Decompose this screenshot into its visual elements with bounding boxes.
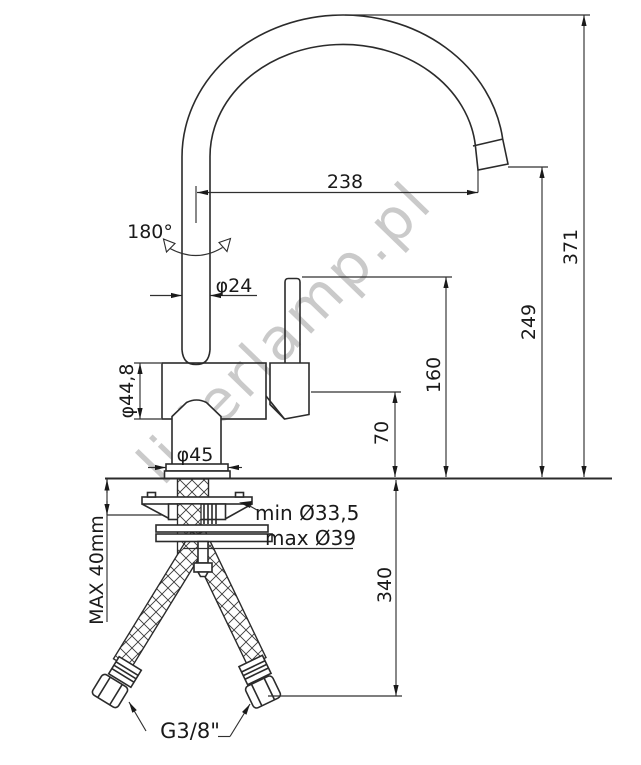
dim-340: 340 (374, 567, 396, 603)
dimension-spout-tube-dia: φ24 (150, 275, 257, 297)
dim-max40mm: MAX 40mm (86, 515, 108, 625)
dim-phi24: φ24 (216, 275, 253, 297)
extension-lines (134, 363, 161, 419)
threaded-shank (178, 479, 209, 498)
spout-outer-arc (182, 15, 503, 157)
dim-phi45: φ45 (177, 444, 214, 466)
washer-plate (142, 497, 252, 504)
label-g38: G3/8" (160, 719, 220, 743)
dim-249: 249 (518, 304, 540, 340)
label-hole-min: min Ø33,5 (255, 501, 359, 525)
dimension-body-dia: φ44,8 (116, 363, 161, 419)
dim-160: 160 (423, 357, 445, 393)
flexible-hoses (114, 531, 267, 670)
thread-leader-left (129, 702, 146, 731)
rotation-arrow-right (219, 239, 231, 252)
label-hole-max: max Ø39 (265, 526, 356, 550)
mounting-stud (198, 542, 208, 564)
dim-238: 238 (327, 171, 363, 193)
washer-tab-left (148, 493, 156, 498)
hose-fittings (91, 655, 282, 709)
technical-drawing: liderlamp.pl (0, 0, 641, 765)
hose-left (114, 532, 209, 669)
spout-inner-arc (210, 44, 475, 157)
spout-tube (182, 157, 210, 350)
dimension-outlet-height: 249 (508, 167, 548, 477)
washer-tab-right (236, 493, 244, 498)
rotation-arc (170, 248, 223, 256)
base-plate-lower (165, 471, 231, 479)
dimension-rotation: 180° (127, 221, 230, 256)
aerator-seam (473, 139, 503, 146)
dimension-body-height: 70 (311, 392, 401, 477)
label-thread: G3/8" (129, 702, 250, 743)
thread-leader-right (230, 704, 250, 737)
lock-nut-upper (156, 525, 268, 532)
handle-housing (270, 363, 309, 419)
stud-nut (194, 563, 212, 572)
dim-371: 371 (560, 229, 582, 265)
dim-phi448: φ44,8 (116, 364, 138, 419)
dim-70: 70 (371, 421, 393, 445)
stud-tip (198, 572, 208, 577)
lock-nut-lower (156, 534, 272, 542)
